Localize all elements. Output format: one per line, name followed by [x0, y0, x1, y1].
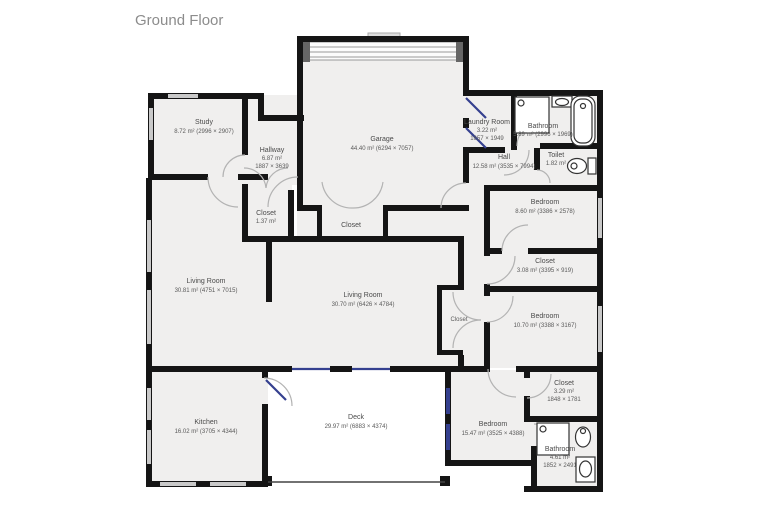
window: [149, 108, 153, 140]
window: [147, 220, 151, 272]
closet-bottom-dims: 1848 × 1781: [547, 397, 581, 403]
walls-part: [458, 236, 464, 290]
sink-basin: [580, 461, 592, 477]
closet-hallway-area: 1.37 m²: [256, 219, 276, 225]
toilet-tank: [588, 158, 596, 174]
walls-part: [288, 190, 294, 236]
window: [598, 198, 602, 238]
bedroom-bottom-area: 15.47 m² (3525 × 4388): [462, 431, 525, 437]
walls-part: [484, 286, 603, 292]
walls-part: [383, 211, 388, 236]
walls-part: [262, 372, 268, 378]
window: [147, 388, 151, 420]
kitchen-area: 16.02 m² (3705 × 4344): [175, 429, 238, 435]
walls-part: [297, 36, 469, 42]
window: [147, 430, 151, 464]
walls-part: [148, 93, 264, 99]
bathroom-bottom-label: Bathroom: [545, 446, 576, 453]
hallway-dims: 1887 × 3639: [255, 164, 289, 170]
laundry-label: Laundry Room: [464, 119, 510, 126]
walls-part: [148, 174, 208, 180]
bedroom-top-area: 8.60 m² (3386 × 2578): [515, 209, 575, 215]
window: [210, 482, 246, 486]
bathroom-top-area: 5.89 m² (2996 × 1969): [513, 132, 573, 138]
deck-label: Deck: [348, 414, 364, 421]
shower-drain: [540, 426, 546, 432]
walls-part: [297, 205, 322, 211]
walls-part: [531, 446, 537, 492]
window: [598, 306, 602, 352]
bedroom-middle-label: Bedroom: [531, 313, 560, 320]
closet-bottom-label: Closet: [554, 380, 574, 387]
bedroom-bottom-label: Bedroom: [479, 421, 508, 428]
room-kitchen-fill: [146, 370, 268, 483]
living-center-area: 30.70 m² (6426 × 4784): [332, 302, 395, 308]
room-closet-bottom-fill: [524, 370, 603, 420]
walls-part: [330, 366, 352, 372]
walls-part: [463, 90, 603, 96]
walls-part: [297, 36, 303, 211]
living-center-label: Living Room: [344, 292, 383, 299]
bedroom-middle-area: 10.70 m² (3388 × 3167): [514, 323, 577, 329]
bathroom-bottom-area: 4.61 m²: [550, 455, 570, 461]
study-label: Study: [195, 119, 213, 126]
laundry-dims: 1657 × 1949: [470, 136, 504, 142]
walls-part: [484, 322, 490, 372]
walls-part: [484, 185, 490, 256]
deck-post-left: [262, 476, 272, 486]
walls-part: [445, 460, 537, 466]
laundry-area: 3.22 m²: [477, 128, 497, 134]
walls-part: [242, 99, 248, 155]
closet-bedrooms-label: Closet: [535, 258, 555, 265]
deck-post-right: [440, 476, 450, 486]
walls-part: [146, 366, 292, 372]
deck-area: 29.97 m² (6883 × 4374): [325, 424, 388, 430]
window: [160, 482, 196, 486]
bathroom-bottom-dims: 1852 × 2491: [543, 463, 577, 469]
floor-plan-page: Ground Floor: [0, 0, 768, 512]
walls-part: [524, 486, 603, 492]
study-area: 8.72 m² (2996 × 2907): [174, 129, 234, 135]
hallway-label: Hallway: [260, 147, 285, 154]
bathroom-top-label: Bathroom: [528, 123, 559, 130]
walls-part: [463, 366, 488, 372]
walls-part: [262, 404, 268, 483]
walls-part: [511, 143, 517, 149]
room-bedroom-bottom-fill: [445, 370, 537, 466]
hall-area: 12.58 m² (3535 × 7994): [473, 164, 536, 170]
garage-door-post-left: [303, 40, 310, 62]
garage-area: 44.40 m² (6294 × 7057): [351, 146, 414, 152]
shower-drain: [518, 100, 524, 106]
walls-part: [437, 350, 463, 355]
window-blue: [446, 388, 450, 414]
walls-part: [242, 184, 248, 236]
walls-part: [445, 372, 451, 466]
walls-part: [390, 366, 463, 372]
walls-part: [490, 185, 603, 191]
toilet-detail: [571, 163, 577, 169]
window: [168, 94, 198, 98]
walls-part: [383, 205, 469, 211]
walls-part: [248, 174, 268, 180]
hall-label: Hall: [498, 154, 511, 161]
living-left-area: 30.81 m² (4751 × 7015): [175, 288, 238, 294]
closet-hallway-label: Closet: [256, 210, 276, 217]
walls-part: [463, 147, 505, 153]
walls-part: [242, 236, 463, 242]
walls-part: [531, 416, 537, 422]
walls-part: [528, 248, 603, 254]
window: [147, 290, 151, 344]
living-left-label: Living Room: [187, 278, 226, 285]
floor-plan: Study 8.72 m² (2996 × 2907) Hallway 6.87…: [0, 0, 768, 512]
room-study-fill: [150, 95, 302, 185]
walls-part: [540, 143, 603, 149]
walls-part: [463, 150, 469, 183]
closet-bottom-area: 3.29 m²: [554, 389, 574, 395]
walls-part: [484, 248, 502, 254]
closet-bedrooms-area: 3.08 m² (3395 × 919): [517, 268, 573, 274]
closet-garage-label: Closet: [341, 222, 361, 229]
toilet-area: 1.82 m²: [546, 161, 566, 167]
walls-part: [524, 372, 530, 378]
walls-part: [238, 174, 248, 180]
walls-part: [266, 240, 272, 302]
hallway-area: 6.87 m²: [262, 156, 282, 162]
garage-door-post-right: [456, 40, 463, 62]
toilet-detail: [581, 429, 586, 434]
walls-part: [317, 211, 322, 236]
closet-corridor-label: Closet: [450, 317, 467, 323]
garage-label: Garage: [370, 136, 393, 143]
toilet-label: Toilet: [548, 152, 564, 159]
walls-part: [463, 36, 469, 96]
bedroom-top-label: Bedroom: [531, 199, 560, 206]
walls-part: [437, 285, 442, 355]
window-blue: [446, 424, 450, 450]
walls-part: [458, 355, 464, 366]
kitchen-label: Kitchen: [194, 419, 217, 426]
bathtub-drain: [581, 104, 586, 109]
walls-part: [516, 366, 603, 372]
sink-basin: [556, 99, 569, 106]
